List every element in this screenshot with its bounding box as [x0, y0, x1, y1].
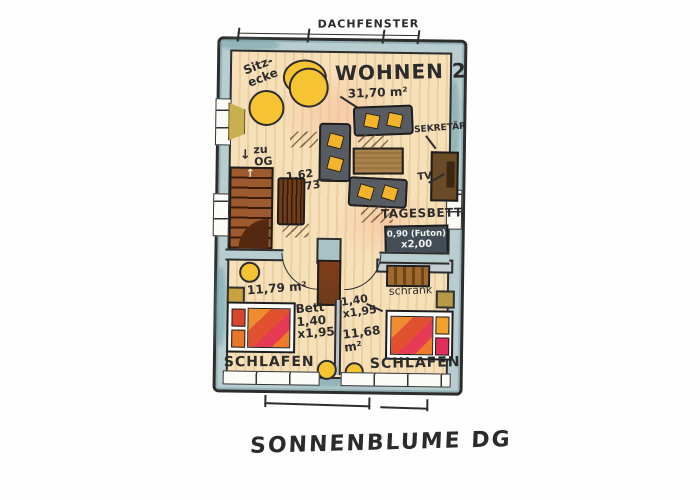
- nightstand: [435, 316, 449, 334]
- sill-tick: [426, 399, 428, 411]
- daybed-dim-line1: 0,90 (Futon): [386, 228, 446, 239]
- stool: [436, 290, 455, 308]
- window-bottom-left: [223, 370, 320, 385]
- area-line2: m²: [343, 338, 362, 354]
- sketch-hatch: [290, 131, 318, 147]
- partition-wall-right: [379, 252, 449, 265]
- sofa-cushion: [380, 184, 398, 202]
- floor-plan-canvas: DACHFENSTER WOHNEN 2 31,70 m² Sitz- ecke: [0, 0, 700, 500]
- sekretaer-desk: [430, 151, 459, 201]
- partition-wall-left: [225, 248, 283, 261]
- leader-line: [317, 179, 331, 181]
- stairs-run-arrow: ↑: [245, 168, 254, 180]
- daybed-dim-line2: x2,00: [387, 238, 447, 250]
- roof-window-label: DACHFENSTER: [318, 18, 420, 30]
- living-room-title: WOHNEN 2: [335, 61, 467, 85]
- bed-blanket: [390, 316, 434, 356]
- stairs-arrow: ↓: [240, 149, 251, 163]
- sofa-cushion: [363, 113, 381, 130]
- nightstand: [435, 337, 449, 355]
- bed-left: [226, 301, 296, 353]
- dormer-sill-line: [264, 402, 370, 407]
- nightstand: [231, 309, 245, 327]
- bed-dim-line2: x1,95: [297, 325, 335, 342]
- stair-railing: [277, 177, 306, 225]
- stairs-label: zu OG: [253, 143, 273, 167]
- bed-blanket: [247, 308, 291, 349]
- living-room-area: 31,70 m²: [347, 85, 407, 100]
- sketch-hatch: [358, 134, 388, 148]
- sofa-bottom: [348, 176, 408, 209]
- bedroom-right-title: SCHLAFEN: [370, 355, 461, 372]
- wardrobe-label: schrank: [389, 284, 433, 297]
- sofa-cushion: [326, 155, 344, 172]
- bed-left-dimension: Bett 1,40 x1,95: [295, 300, 335, 340]
- dormer-sill-line: [380, 406, 428, 410]
- floor-plan: DACHFENSTER WOHNEN 2 31,70 m² Sitz- ecke: [213, 36, 462, 389]
- plan-title: SONNENBLUME DG: [250, 429, 471, 458]
- window-left-lower: [213, 193, 230, 236]
- sill-tick: [264, 395, 266, 407]
- daybed-label: TAGESBETT: [381, 206, 463, 220]
- sofa-top: [353, 104, 414, 136]
- bedroom-left-title: SCHLAFEN: [224, 355, 315, 370]
- nightstand: [231, 330, 245, 348]
- sekretaer-desk-top: [446, 162, 454, 188]
- bed-right: [385, 310, 454, 361]
- sofa-cushion: [386, 112, 404, 129]
- sofa-left: [318, 123, 351, 182]
- sofa-cushion: [326, 132, 344, 149]
- dachfenster-dimension-line: [237, 33, 419, 37]
- sill-tick: [368, 397, 370, 409]
- window-bottom-right: [341, 372, 451, 388]
- bedroom-right-area: 11,68 m²: [342, 324, 383, 354]
- coffee-table: [353, 147, 404, 174]
- sofa-cushion: [357, 183, 375, 201]
